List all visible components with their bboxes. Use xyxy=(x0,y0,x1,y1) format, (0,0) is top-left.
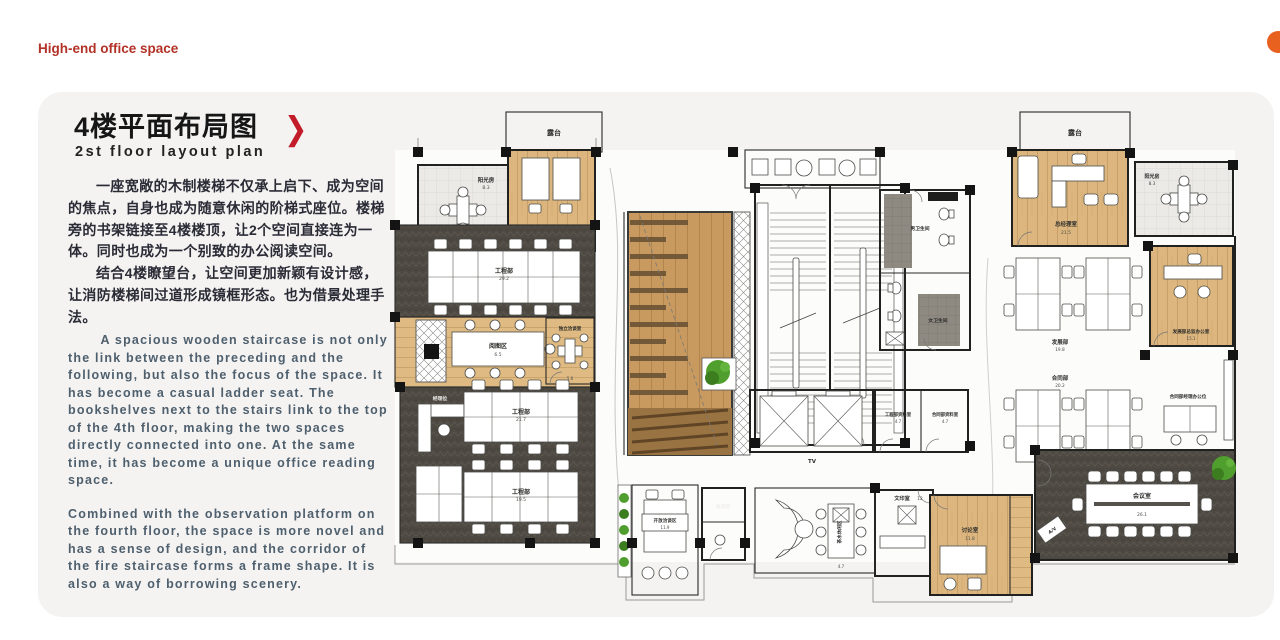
page-kicker: High-end office space xyxy=(38,41,178,56)
room-gm-office: 总经理室 21.5 xyxy=(1012,150,1128,246)
terrace-left: 露台 xyxy=(506,112,602,152)
svg-text:29.2: 29.2 xyxy=(499,276,509,282)
svg-text:总经理室: 总经理室 xyxy=(1055,220,1078,228)
svg-text:21.7: 21.7 xyxy=(516,417,526,423)
svg-text:合同部资料室: 合同部资料室 xyxy=(932,411,959,418)
orange-dot-decoration xyxy=(1267,31,1280,53)
svg-text:11.9: 11.9 xyxy=(661,525,670,530)
svg-text:11.8: 11.8 xyxy=(965,536,975,542)
svg-text:工程部: 工程部 xyxy=(495,267,513,275)
room-dev-director: 发展部总监办公室 15.1 xyxy=(1150,246,1233,346)
feature-staircase xyxy=(624,212,750,455)
svg-text:独立洽谈室: 独立洽谈室 xyxy=(559,325,582,332)
area-eng-dept-2: 经理位 工程部 21.7 工 xyxy=(400,380,595,543)
svg-text:工程部: 工程部 xyxy=(512,408,530,416)
svg-text:工程部: 工程部 xyxy=(512,488,530,496)
svg-text:4.7: 4.7 xyxy=(895,419,902,424)
svg-text:阅图区: 阅图区 xyxy=(489,342,507,350)
svg-text:合同部: 合同部 xyxy=(1052,374,1069,382)
floor-plan: 露台 露台 阳光房 8.3 工程总监办公室 26 xyxy=(388,108,1270,608)
en-paragraph-2: Combined with the observation platform o… xyxy=(68,506,390,594)
slide-page: High-end office space 4楼平面布局图 ❯ 2st floo… xyxy=(0,0,1280,640)
svg-text:4.7: 4.7 xyxy=(942,419,949,424)
svg-text:男卫生间: 男卫生间 xyxy=(910,225,929,232)
svg-text:21.5: 21.5 xyxy=(1061,230,1071,236)
svg-text:电话间: 电话间 xyxy=(716,503,731,510)
svg-text:15.1: 15.1 xyxy=(1187,336,1196,341)
svg-text:26.1: 26.1 xyxy=(1137,512,1147,518)
svg-text:合同部经理办公位: 合同部经理办公位 xyxy=(1170,393,1207,400)
svg-text:TV: TV xyxy=(808,459,817,465)
zh-paragraph-2: 结合4楼瞭望台，让空间更加新颖有设计感，让消防楼梯间过道形成镜框形态。也为借景处… xyxy=(68,263,390,328)
room-sunroom-right: 阳光房 8.3 xyxy=(1135,162,1233,236)
floor-plan-svg: 露台 露台 阳光房 8.3 工程总监办公室 26 xyxy=(388,108,1270,608)
en-paragraph-1: A spacious wooden staircase is not only … xyxy=(68,332,390,490)
svg-text:露台: 露台 xyxy=(1068,128,1082,137)
svg-text:露台: 露台 xyxy=(547,128,561,137)
english-description: A spacious wooden staircase is not only … xyxy=(68,332,390,609)
svg-text:4.7: 4.7 xyxy=(838,564,845,569)
plant xyxy=(702,358,736,390)
svg-text:会议室: 会议室 xyxy=(1133,492,1151,500)
arrow-icon: ❯ xyxy=(284,110,307,148)
room-meeting: A/V 会议室 26.1 xyxy=(1035,450,1236,560)
svg-text:19.5: 19.5 xyxy=(516,497,526,503)
svg-text:12: 12 xyxy=(917,496,923,502)
svg-text:讨论室: 讨论室 xyxy=(962,526,979,534)
chinese-description: 一座宽敞的木制楼梯不仅承上启下、成为空间的焦点，自身也成为随意休闲的阶梯式座位。… xyxy=(68,176,390,329)
svg-text:20.2: 20.2 xyxy=(1055,383,1065,389)
svg-text:开放洽谈区: 开放洽谈区 xyxy=(654,517,677,524)
svg-text:发展部: 发展部 xyxy=(1051,338,1069,346)
svg-text:6.5: 6.5 xyxy=(494,352,501,358)
room-discussion: 讨论室 11.8 xyxy=(930,495,1032,595)
svg-text:8.3: 8.3 xyxy=(1149,181,1156,187)
area-eng-dept-1: 工程部 29.2 xyxy=(395,225,595,317)
area-reading: 阅图区 6.5 独立洽谈室 5.6 xyxy=(395,317,595,387)
svg-text:8.3: 8.3 xyxy=(482,185,489,191)
svg-text:阳光房: 阳光房 xyxy=(478,176,495,184)
svg-text:工程部资料室: 工程部资料室 xyxy=(885,411,912,418)
svg-text:发展部总监办公室: 发展部总监办公室 xyxy=(1172,328,1210,335)
svg-text:阳光房: 阳光房 xyxy=(1144,173,1159,180)
zh-paragraph-1: 一座宽敞的木制楼梯不仅承上启下、成为空间的焦点，自身也成为随意休闲的阶梯式座位。… xyxy=(68,176,390,263)
page-subtitle: 2st floor layout plan xyxy=(75,144,265,160)
svg-text:经理位: 经理位 xyxy=(433,395,448,402)
terrace-right: 露台 xyxy=(1020,112,1130,152)
svg-text:文印室: 文印室 xyxy=(894,494,910,502)
title-row: 4楼平面布局图 ❯ xyxy=(74,114,308,145)
svg-text:女卫生间: 女卫生间 xyxy=(928,317,947,324)
svg-text:茶水休闲区: 茶水休闲区 xyxy=(836,520,843,544)
svg-text:19.8: 19.8 xyxy=(1055,347,1065,353)
page-title: 4楼平面布局图 xyxy=(74,114,258,141)
